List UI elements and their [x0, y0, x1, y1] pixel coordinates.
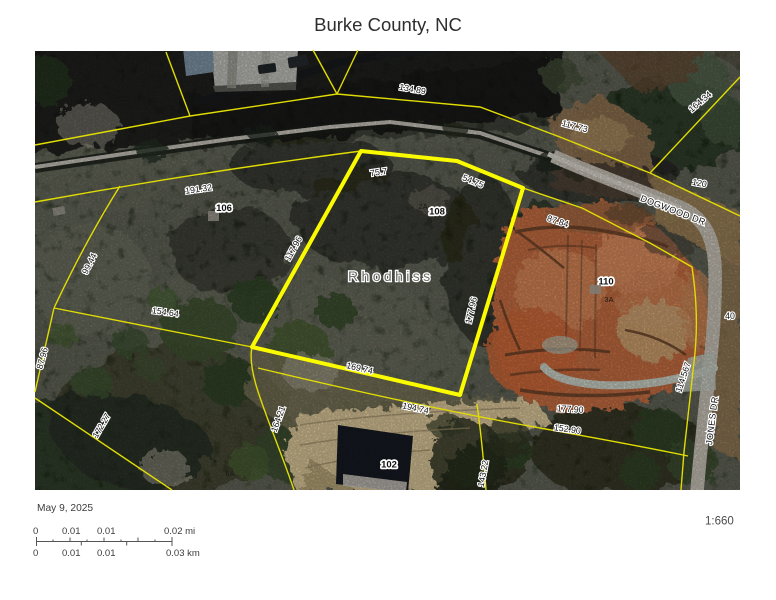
svg-text:177.90: 177.90 — [556, 403, 584, 414]
svg-text:108: 108 — [429, 207, 445, 218]
svg-text:0.01: 0.01 — [97, 526, 116, 537]
svg-text:0.01: 0.01 — [62, 548, 81, 559]
svg-text:40: 40 — [725, 311, 735, 321]
svg-text:0: 0 — [33, 526, 38, 537]
svg-text:Rhodhiss: Rhodhiss — [348, 268, 434, 284]
svg-text:2A: 2A — [418, 202, 427, 211]
svg-text:0.01: 0.01 — [97, 548, 116, 559]
svg-text:1:660: 1:660 — [705, 516, 734, 528]
svg-text:May 9, 2025: May 9, 2025 — [37, 503, 93, 514]
svg-text:0.01: 0.01 — [62, 526, 81, 537]
svg-text:106: 106 — [216, 203, 232, 214]
svg-text:3A: 3A — [604, 295, 613, 304]
svg-text:0.02 mi: 0.02 mi — [164, 526, 195, 537]
svg-text:0.03 km: 0.03 km — [166, 548, 200, 559]
svg-text:6A: 6A — [225, 469, 234, 478]
svg-text:102: 102 — [381, 460, 397, 471]
svg-text:0: 0 — [33, 548, 38, 559]
